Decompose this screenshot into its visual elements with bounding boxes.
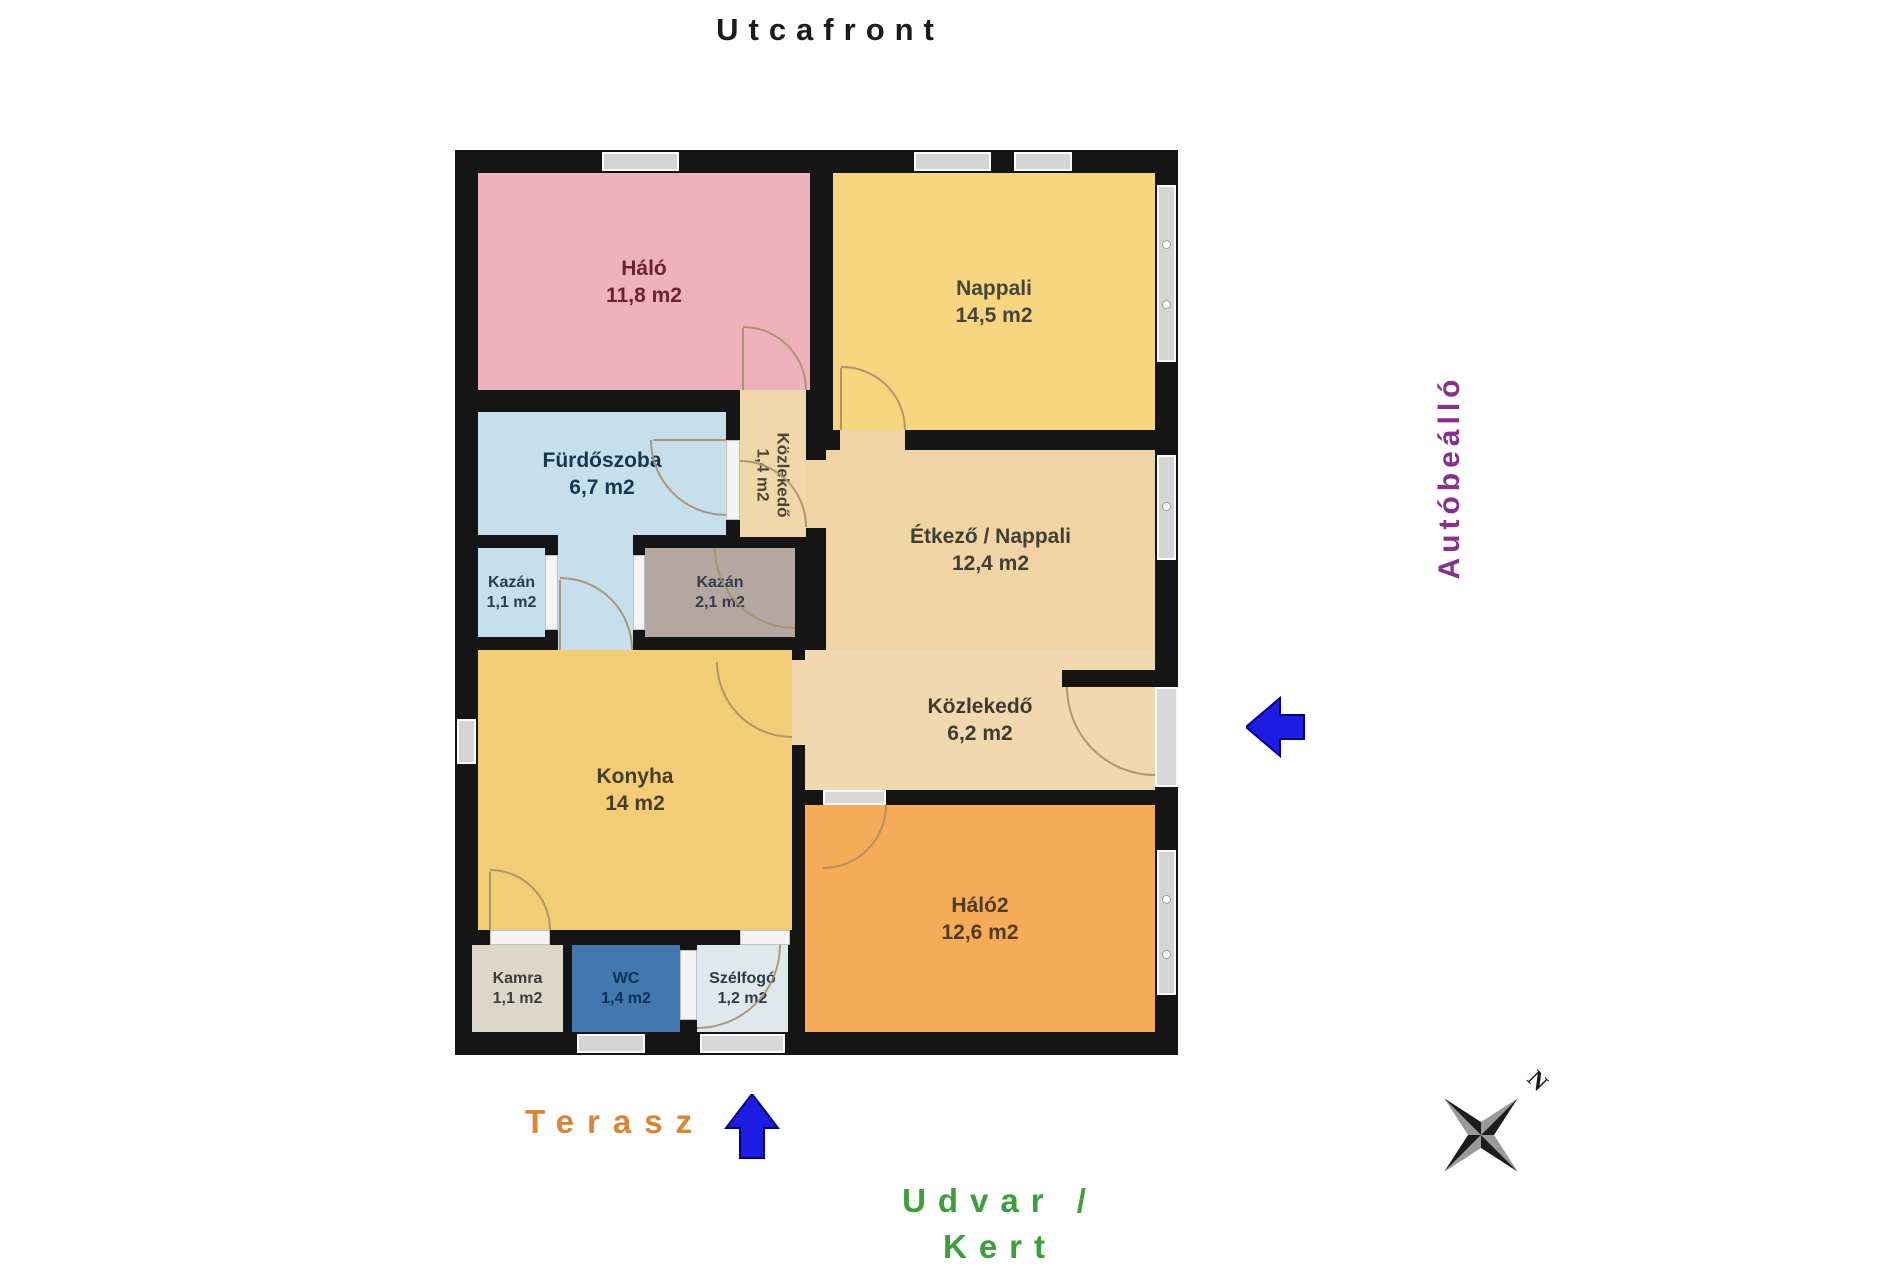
compass-north-label: N [1522,1066,1553,1097]
window-halo-top [602,152,679,171]
window-mullion-dot [1162,950,1171,959]
room-label: Szélfogó [709,969,776,989]
doorway-konyha-kozlekedo [792,660,805,745]
floorplan-canvas: Utcafront Autóbeálló Terasz Udvar / Kert… [0,0,1889,1280]
doorway-kazan-kis [545,555,558,630]
room-area: 6,7 m2 [569,474,634,501]
room-label: Háló2 [951,892,1008,919]
room-label: Nappali [956,275,1032,302]
window-nappali-top1 [914,152,991,171]
room-area: 12,6 m2 [941,919,1018,946]
doorway-nappali [840,430,905,450]
arrow-up-icon [724,1094,780,1160]
carport-label: Autóbeálló [1433,317,1467,637]
window-nappali-top2 [1014,152,1072,171]
room-label: Közlekedő [927,693,1032,720]
room-nappali: Nappali 14,5 m2 [833,173,1155,430]
window-halo2-right [1157,850,1176,995]
room-area: 1,2 m2 [718,989,768,1009]
room-label: Fürdőszoba [543,447,662,474]
doorway-kazan-nagy [633,555,645,630]
window-mullion-dot [1162,240,1171,249]
window-mullion-dot [1162,895,1171,904]
room-konyha: Konyha 14 m2 [478,650,792,930]
window-nappali-right [1157,185,1176,362]
yard-label-line1: Udvar / [845,1178,1155,1224]
room-label: WC [613,969,640,989]
terrace-label: Terasz [495,1103,735,1141]
room-area: 1,1 m2 [487,593,537,613]
window-wc-bottom [577,1034,645,1053]
room-kozlekedo-kis: Közlekedő 1,4 m2 [740,412,806,537]
wall-stub [1062,670,1155,687]
room-area: 12,4 m2 [952,550,1029,577]
doorway-konyha-kamra [490,930,550,945]
room-halo: Háló 11,8 m2 [478,173,810,390]
window-mullion-dot [1162,300,1171,309]
yard-label: Udvar / Kert [845,1178,1155,1270]
room-furdoszoba: Fürdőszoba 6,7 m2 [478,412,726,535]
room-szelfogo: Szélfogó 1,2 m2 [697,945,788,1032]
terrace-door [700,1034,785,1053]
arrow-left-icon [1246,696,1306,760]
room-halo2: Háló2 12,6 m2 [805,805,1155,1032]
entrance-door [1155,687,1178,787]
street-front-label: Utcafront [630,12,1030,48]
room-label: Kamra [493,969,543,989]
room-label: Étkező / Nappali [910,523,1071,550]
room-label: Kazán [488,573,535,593]
doorway-konyha-szelfogo [740,930,790,945]
room-label: Közlekedő [773,432,793,517]
room-etkezo-nappali: Étkező / Nappali 12,4 m2 [826,450,1155,650]
room-area: 1,1 m2 [493,989,543,1009]
room-area: 2,1 m2 [695,593,745,613]
window-mullion-dot [1162,502,1171,511]
room-area: 1,4 m2 [753,432,773,517]
window-konyha-left [457,719,476,764]
doorway-wc-szelfogo [680,950,697,1020]
room-area: 11,8 m2 [606,282,682,309]
room-kamra: Kamra 1,1 m2 [472,945,563,1032]
room-connector [558,535,633,650]
room-label: Konyha [596,763,673,790]
door-halo2 [823,790,886,805]
floor-plan: Háló 11,8 m2 Nappali 14,5 m2 Fürdőszoba … [455,150,1178,1055]
doorway-kozkis-etkezo [806,460,826,528]
room-label: Kazán [696,573,743,593]
room-area: 6,2 m2 [947,720,1012,747]
compass-rose-icon: N [1418,1048,1568,1198]
doorway-furdoszoba [726,440,740,520]
room-area: 14 m2 [605,790,665,817]
room-label: Háló [621,255,667,282]
room-wc: WC 1,4 m2 [572,945,680,1032]
yard-label-line2: Kert [845,1224,1155,1270]
room-area: 1,4 m2 [601,989,651,1009]
doorway-halo [740,390,806,412]
room-area: 14,5 m2 [955,302,1032,329]
room-kazan-kis: Kazán 1,1 m2 [478,548,545,637]
room-kazan-nagy: Kazán 2,1 m2 [645,548,795,637]
